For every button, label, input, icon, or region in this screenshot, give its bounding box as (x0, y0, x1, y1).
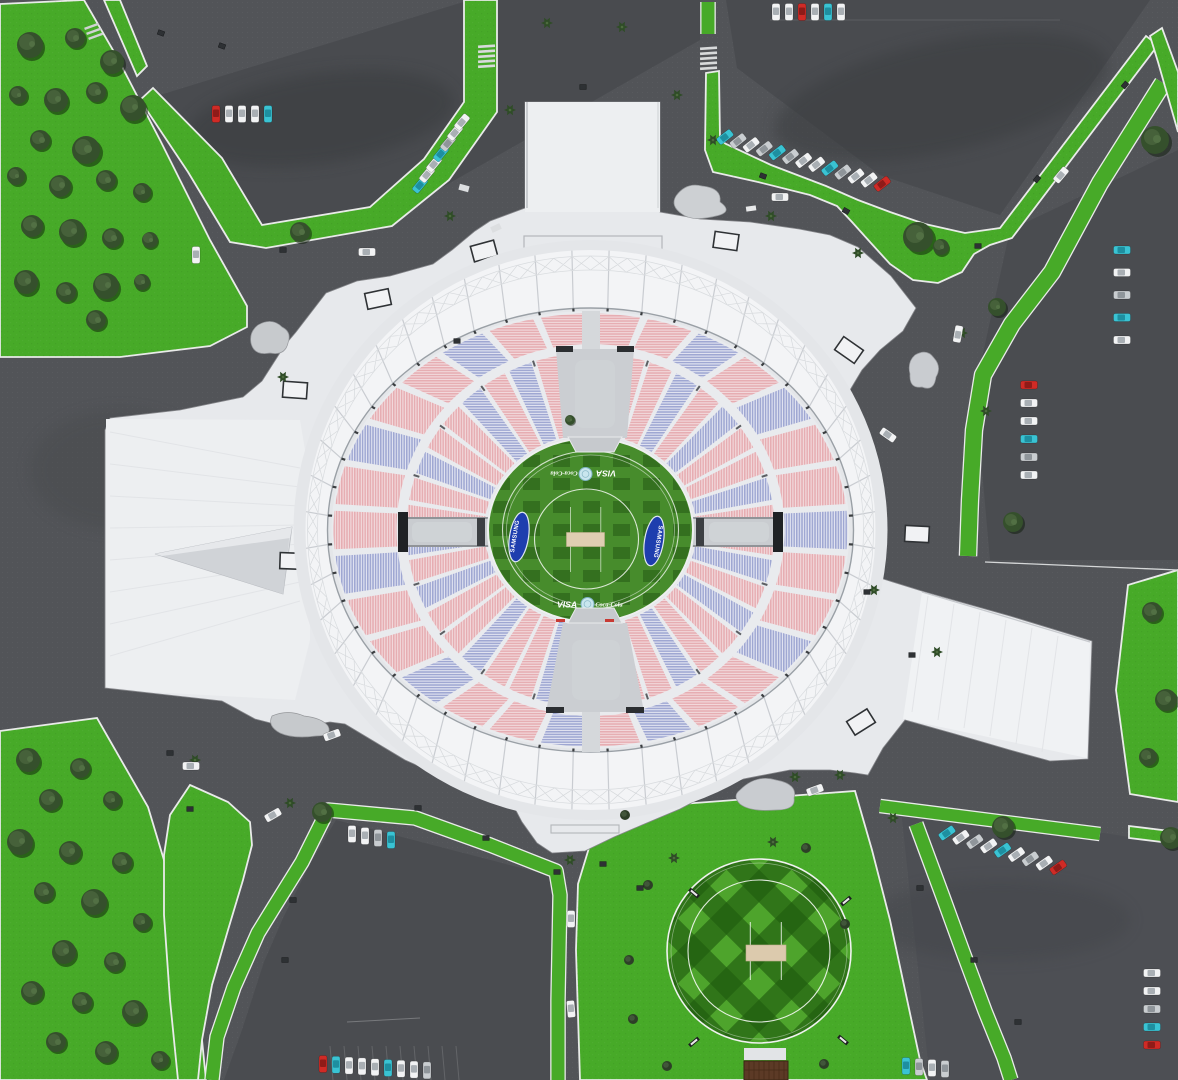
svg-text:VISA: VISA (596, 469, 616, 479)
svg-text:Coca-Cola: Coca-Cola (550, 470, 577, 477)
svg-text:VISA: VISA (557, 600, 577, 610)
svg-text:Coca-Cola: Coca-Cola (595, 602, 622, 609)
